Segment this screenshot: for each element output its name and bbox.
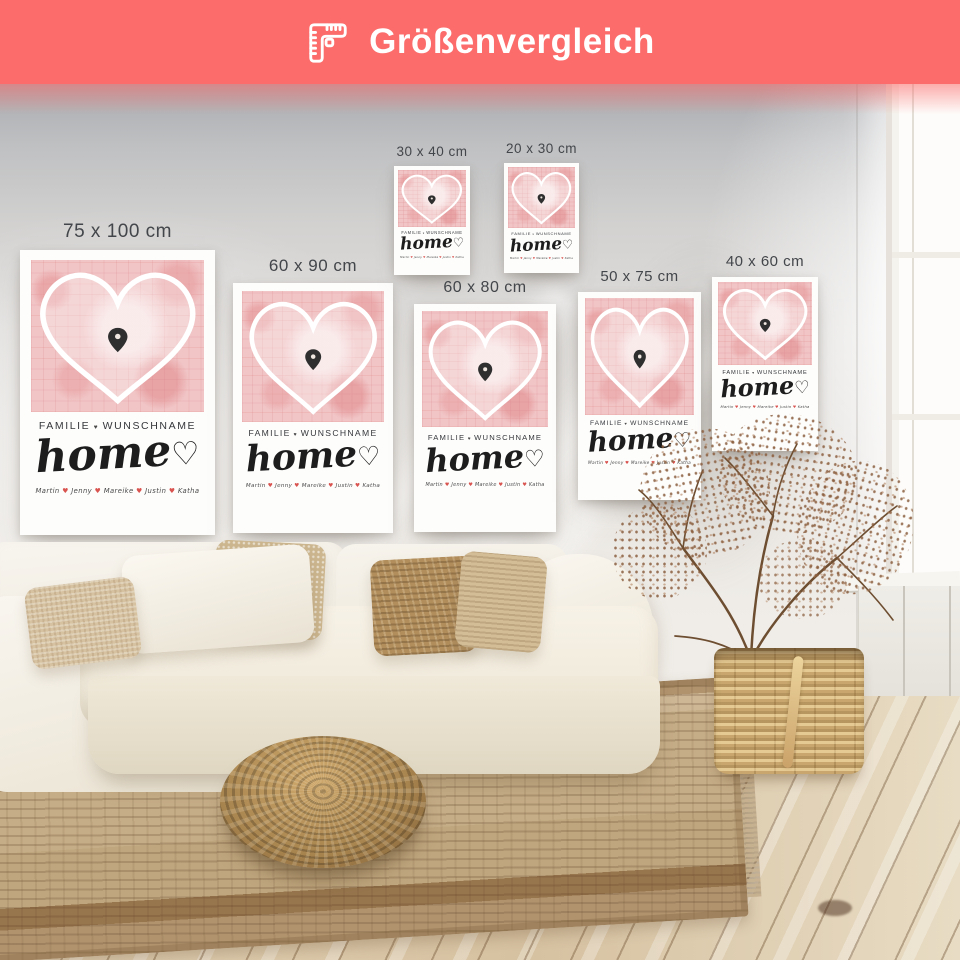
person-name: Katha bbox=[565, 257, 573, 260]
heart-separator-icon: ♥ bbox=[92, 487, 104, 495]
heart-separator-icon: ♥ bbox=[497, 482, 505, 488]
poster-75x100cm: 75 x 100 cmFAMILIE ♥ WUNSCHNAMEhome♡Mart… bbox=[20, 250, 215, 535]
size-label: 60 x 90 cm bbox=[269, 256, 357, 276]
person-name: Jenny bbox=[451, 482, 466, 488]
room-photo: 75 x 100 cmFAMILIE ♥ WUNSCHNAMEhome♡Mart… bbox=[0, 84, 960, 960]
heart-map bbox=[398, 170, 466, 227]
home-script-text: home♡ bbox=[394, 233, 470, 253]
person-name: Katha bbox=[455, 256, 463, 259]
size-label: 30 x 40 cm bbox=[396, 144, 467, 159]
person-name: Mareike bbox=[475, 482, 497, 488]
poster-30x40cm: 30 x 40 cmFAMILIE ♥ WUNSCHNAMEhome♡Marti… bbox=[394, 166, 470, 275]
person-name: Martin bbox=[510, 257, 519, 260]
heart-map bbox=[31, 260, 205, 412]
heart-separator-icon: ♥ bbox=[266, 483, 276, 489]
names-line: Martin ♥ Jenny ♥ Mareike ♥ Justin ♥ Kath… bbox=[394, 256, 470, 259]
size-label: 20 x 30 cm bbox=[506, 141, 577, 156]
poster-paper: FAMILIE ♥ WUNSCHNAMEhome♡Martin ♥ Jenny … bbox=[233, 283, 393, 533]
banner-title: Größenvergleich bbox=[369, 22, 655, 62]
person-name: Katha bbox=[362, 483, 380, 489]
names-line: Martin ♥ Jenny ♥ Mareike ♥ Justin ♥ Kath… bbox=[20, 487, 215, 495]
throw-pillow bbox=[23, 576, 142, 671]
script-heart-icon: ♡ bbox=[453, 236, 465, 251]
person-name: Jenny bbox=[414, 256, 422, 259]
heart-separator-icon: ♥ bbox=[60, 487, 72, 495]
script-heart-icon: ♡ bbox=[794, 378, 810, 399]
poster-60x80cm: 60 x 80 cmFAMILIE ♥ WUNSCHNAMEhome♡Marti… bbox=[414, 304, 556, 532]
names-line: Martin ♥ Jenny ♥ Mareike ♥ Justin ♥ Kath… bbox=[504, 257, 579, 260]
script-heart-icon: ♡ bbox=[524, 446, 546, 473]
header-banner: Größenvergleich bbox=[0, 0, 960, 84]
names-line: Martin ♥ Jenny ♥ Mareike ♥ Justin ♥ Kath… bbox=[233, 483, 393, 489]
home-script-text: home♡ bbox=[20, 428, 215, 480]
heart-separator-icon: ♥ bbox=[326, 483, 336, 489]
poster-20x30cm: 20 x 30 cmFAMILIE ♥ WUNSCHNAMEhome♡Marti… bbox=[504, 163, 579, 273]
poster-paper: FAMILIE ♥ WUNSCHNAMEhome♡Martin ♥ Jenny … bbox=[394, 166, 470, 275]
person-name: Martin bbox=[425, 482, 443, 488]
heart-separator-icon: ♥ bbox=[467, 482, 475, 488]
throw-pillow bbox=[121, 544, 315, 655]
person-name: Justin bbox=[336, 483, 353, 489]
size-label: 40 x 60 cm bbox=[726, 253, 804, 270]
throw-pillow bbox=[454, 550, 548, 653]
person-name: Martin bbox=[246, 483, 266, 489]
heart-separator-icon: ♥ bbox=[292, 483, 302, 489]
heart-map bbox=[508, 167, 575, 228]
heart-map bbox=[242, 291, 384, 422]
floor-shadow-spot bbox=[818, 900, 852, 916]
heart-separator-icon: ♥ bbox=[520, 482, 528, 488]
heart-separator-icon: ♥ bbox=[134, 487, 146, 495]
poster-paper: FAMILIE ♥ WUNSCHNAMEhome♡Martin ♥ Jenny … bbox=[414, 304, 556, 532]
product-size-comparison-image: Größenvergleich 75 x 100 cmFAMILIE ♥ WUN… bbox=[0, 0, 960, 960]
names-line: Martin ♥ Jenny ♥ Mareike ♥ Justin ♥ Kath… bbox=[414, 482, 556, 488]
heart-separator-icon: ♥ bbox=[166, 487, 178, 495]
person-name: Jenny bbox=[275, 483, 292, 489]
person-name: Mareike bbox=[104, 487, 134, 495]
person-name: Katha bbox=[529, 482, 545, 488]
person-name: Martin bbox=[36, 487, 60, 495]
heart-map bbox=[718, 282, 812, 365]
script-heart-icon: ♡ bbox=[170, 436, 200, 473]
home-script-text: home♡ bbox=[504, 234, 579, 254]
poster-paper: FAMILIE ♥ WUNSCHNAMEhome♡Martin ♥ Jenny … bbox=[20, 250, 215, 535]
poster-60x90cm: 60 x 90 cmFAMILIE ♥ WUNSCHNAMEhome♡Marti… bbox=[233, 283, 393, 533]
person-name: Mareike bbox=[427, 256, 439, 259]
folding-ruler-icon bbox=[305, 19, 351, 65]
person-name: Justin bbox=[505, 482, 520, 488]
heart-map bbox=[422, 311, 548, 427]
person-name: Katha bbox=[178, 487, 200, 495]
person-name: Martin bbox=[400, 256, 409, 259]
person-name: Justin bbox=[443, 256, 451, 259]
size-label: 60 x 80 cm bbox=[443, 279, 526, 297]
home-script-text: home♡ bbox=[414, 439, 556, 477]
person-name: Mareike bbox=[536, 257, 547, 260]
dried-flowers-cluster bbox=[758, 539, 848, 619]
home-script-text: home♡ bbox=[233, 435, 393, 478]
person-name: Jenny bbox=[524, 257, 532, 260]
person-name: Justin bbox=[145, 487, 166, 495]
wicker-pouf bbox=[220, 736, 426, 868]
poster-paper: FAMILIE ♥ WUNSCHNAMEhome♡Martin ♥ Jenny … bbox=[504, 163, 579, 273]
script-heart-icon: ♡ bbox=[356, 442, 381, 473]
dried-flowers-cluster bbox=[612, 504, 707, 599]
window-mullion bbox=[892, 252, 960, 258]
size-label: 50 x 75 cm bbox=[600, 268, 678, 285]
size-label: 75 x 100 cm bbox=[63, 221, 172, 243]
script-heart-icon: ♡ bbox=[562, 237, 574, 252]
person-name: Jenny bbox=[71, 487, 92, 495]
person-name: Mareike bbox=[302, 483, 326, 489]
